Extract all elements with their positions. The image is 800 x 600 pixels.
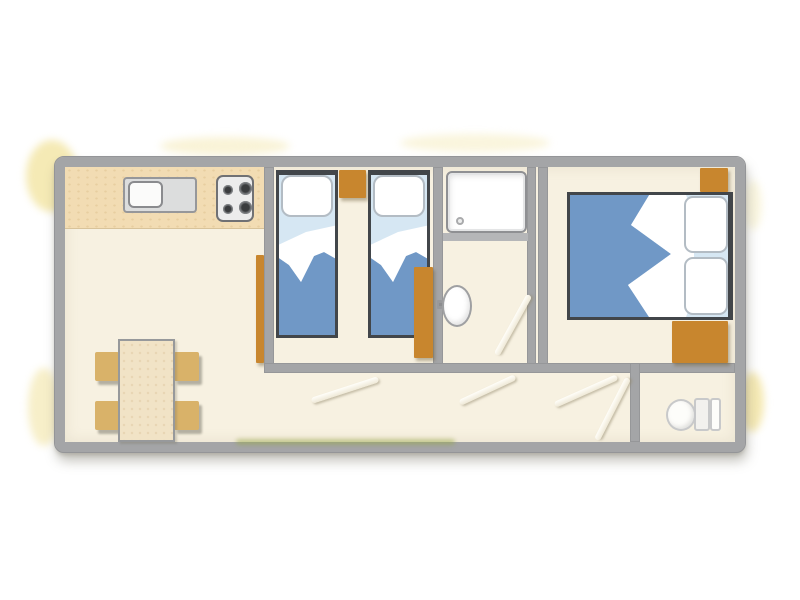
shelf <box>256 255 264 363</box>
pillow <box>374 176 424 216</box>
washbasin <box>442 285 472 327</box>
single-bed <box>276 170 338 338</box>
pillow <box>685 258 727 314</box>
stove-burner <box>223 204 233 214</box>
dining-chair <box>174 352 199 381</box>
dining-chair <box>174 401 199 430</box>
kitchen-counter <box>65 167 264 229</box>
toilet-bowl <box>666 399 696 431</box>
wardrobe <box>414 267 433 358</box>
wall-wc-left <box>630 363 640 442</box>
stove-burner <box>239 182 252 195</box>
pillow <box>282 176 332 216</box>
kitchen-sink <box>123 177 197 213</box>
toilet-tank <box>710 398 721 431</box>
headboard <box>369 171 429 175</box>
double-bed-drawing <box>567 192 733 320</box>
wall-rooms-bottom <box>264 363 735 373</box>
outer-wall <box>55 157 745 452</box>
watercolor-smudge <box>400 134 550 152</box>
stove-burner <box>223 185 233 195</box>
toilet-tank <box>694 398 710 431</box>
wall-twin-left <box>264 167 274 373</box>
dining-chair <box>95 352 119 381</box>
shower-step <box>443 233 528 241</box>
watercolor-smudge <box>744 180 762 230</box>
headboard <box>277 171 337 175</box>
headboard <box>728 193 732 319</box>
pillow <box>685 197 727 252</box>
wall-bath-right <box>527 167 536 373</box>
dining-table <box>118 339 175 442</box>
sink-bowl <box>128 181 163 208</box>
shower-drain <box>456 217 464 225</box>
stove <box>216 175 254 222</box>
double-bed <box>567 192 733 320</box>
wardrobe <box>672 321 728 363</box>
wardrobe <box>700 168 728 192</box>
wall-master-left <box>538 167 548 373</box>
wall-twin-right <box>433 167 443 373</box>
stove-burner <box>239 201 252 214</box>
shower-tray <box>446 171 527 233</box>
watercolor-smudge <box>160 137 290 155</box>
dining-chair <box>95 401 119 430</box>
nightstand <box>339 170 366 198</box>
single-bed-drawing <box>276 170 338 338</box>
floorplan-canvas <box>0 0 800 600</box>
grass-smudge <box>236 439 455 445</box>
